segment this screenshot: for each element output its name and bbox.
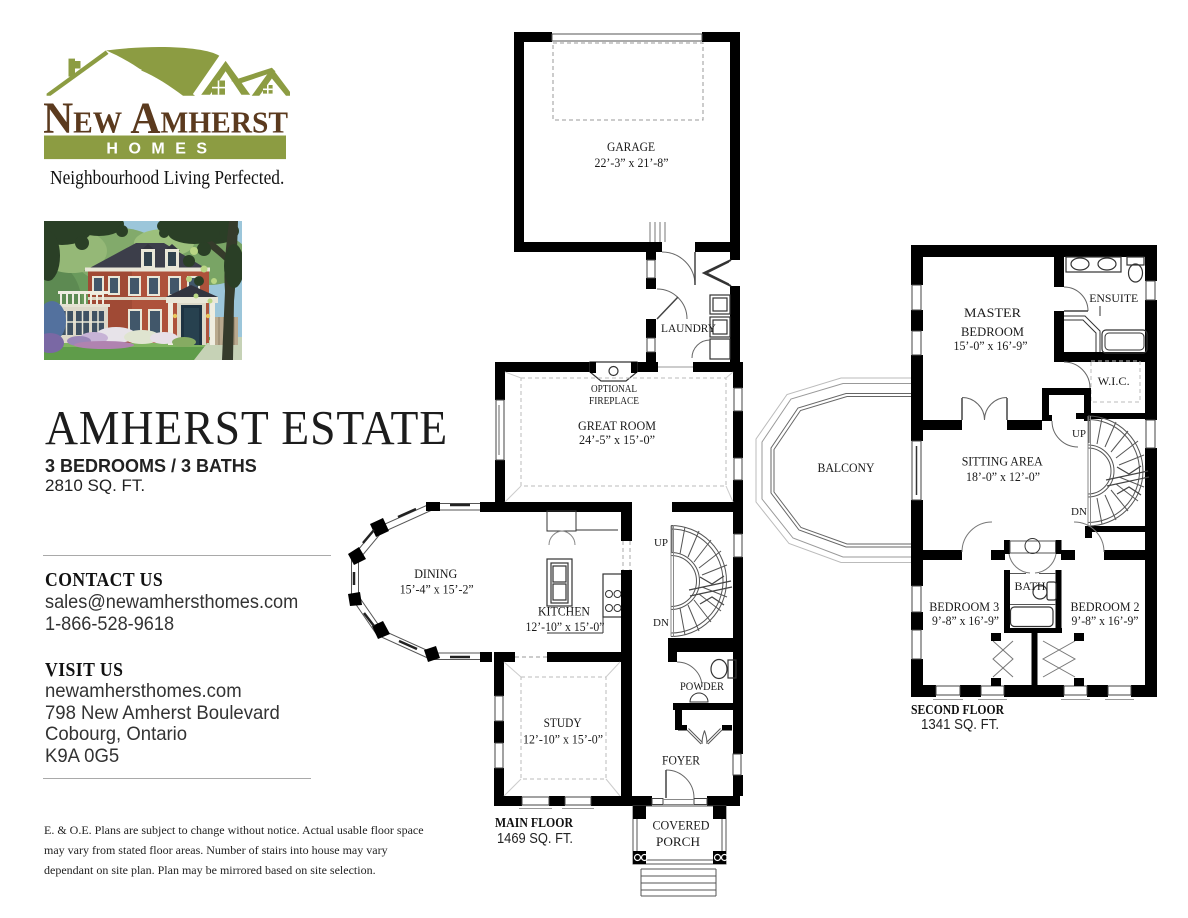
svg-text:24’-5” x 15’-0”: 24’-5” x 15’-0” xyxy=(579,433,655,447)
svg-text:POWDER: POWDER xyxy=(680,679,724,693)
svg-text:GREAT ROOM: GREAT ROOM xyxy=(578,419,656,433)
svg-text:15’-4” x 15’-2”: 15’-4” x 15’-2” xyxy=(400,583,474,597)
svg-text:15’-0” x 16’-9”: 15’-0” x 16’-9” xyxy=(954,339,1028,353)
svg-text:UP: UP xyxy=(1072,428,1086,440)
svg-text:BEDROOM 3: BEDROOM 3 xyxy=(929,600,999,614)
svg-text:18’-0” x 12’-0”: 18’-0” x 12’-0” xyxy=(966,470,1040,484)
svg-text:MAIN FLOOR: MAIN FLOOR xyxy=(495,815,573,830)
svg-text:DN: DN xyxy=(1071,506,1087,518)
svg-text:DINING: DINING xyxy=(414,567,457,581)
svg-text:22’-3” x 21’-8”: 22’-3” x 21’-8” xyxy=(595,156,669,170)
svg-text:9’-8” x 16’-9”: 9’-8” x 16’-9” xyxy=(1072,614,1139,628)
svg-text:LAUNDRY: LAUNDRY xyxy=(661,321,716,335)
svg-text:STUDY: STUDY xyxy=(544,716,582,730)
svg-text:SECOND FLOOR: SECOND FLOOR xyxy=(911,702,1004,717)
svg-text:FIREPLACE: FIREPLACE xyxy=(589,396,639,407)
svg-text:COVERED: COVERED xyxy=(653,819,710,833)
svg-text:1469 SQ. FT.: 1469 SQ. FT. xyxy=(497,831,573,847)
svg-text:12’-10” x 15’-0”: 12’-10” x 15’-0” xyxy=(526,620,605,634)
svg-text:BATH: BATH xyxy=(1015,579,1046,593)
svg-text:BEDROOM: BEDROOM xyxy=(961,325,1024,339)
svg-text:W.I.C.: W.I.C. xyxy=(1098,374,1130,388)
svg-text:GARAGE: GARAGE xyxy=(607,140,655,154)
svg-text:SITTING AREA: SITTING AREA xyxy=(962,455,1043,469)
svg-text:MASTER: MASTER xyxy=(964,306,1022,320)
svg-text:OPTIONAL: OPTIONAL xyxy=(591,384,637,395)
svg-text:ENSUITE: ENSUITE xyxy=(1089,291,1138,305)
svg-text:DN: DN xyxy=(653,617,669,629)
svg-text:BALCONY: BALCONY xyxy=(818,461,875,475)
svg-text:FOYER: FOYER xyxy=(662,754,701,768)
svg-text:9’-8” x 16’-9”: 9’-8” x 16’-9” xyxy=(932,614,999,628)
svg-text:12’-10” x 15’-0”: 12’-10” x 15’-0” xyxy=(523,733,603,747)
svg-text:PORCH: PORCH xyxy=(656,835,700,849)
svg-text:BEDROOM 2: BEDROOM 2 xyxy=(1071,600,1140,614)
svg-text:1341 SQ. FT.: 1341 SQ. FT. xyxy=(921,717,999,733)
svg-text:UP: UP xyxy=(654,537,668,549)
svg-text:KITCHEN: KITCHEN xyxy=(538,605,590,619)
